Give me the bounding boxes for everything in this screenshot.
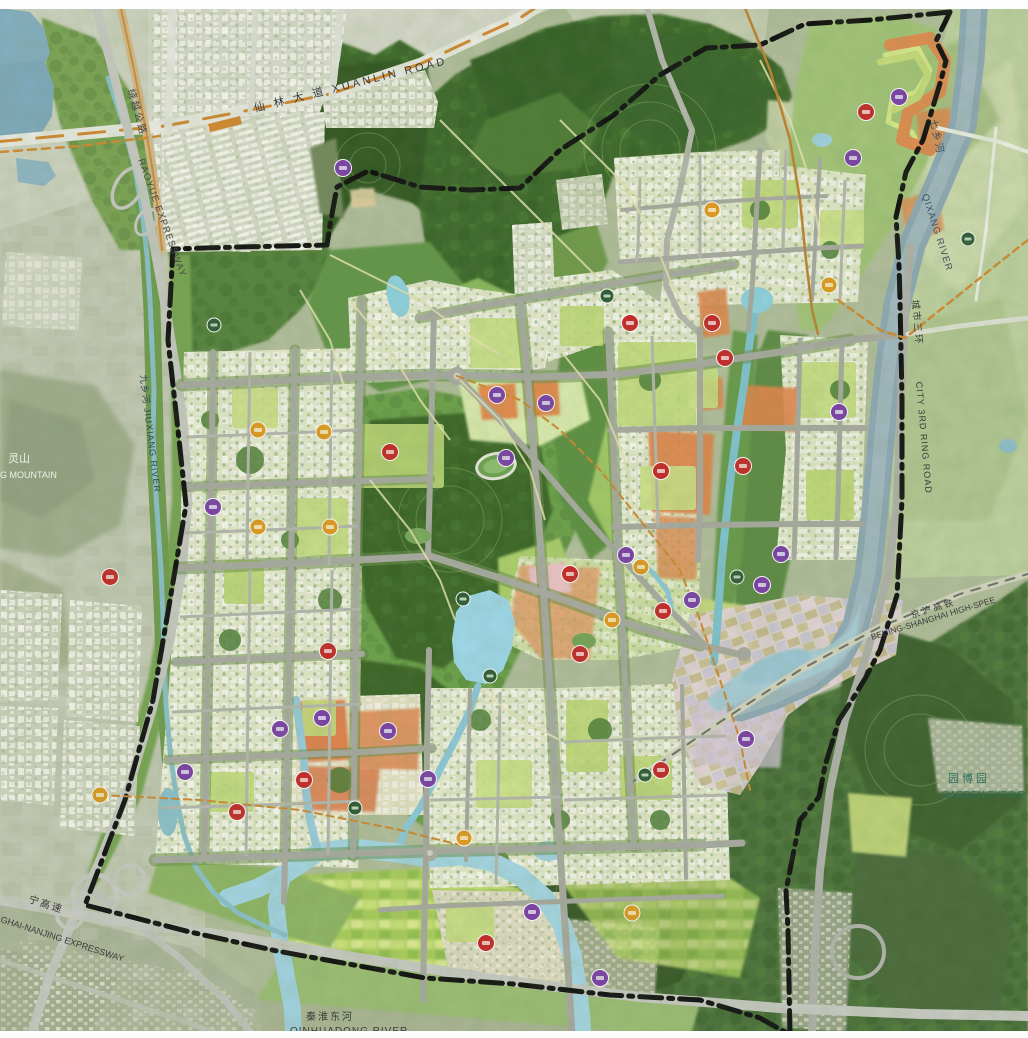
svg-text:秦淮东河: 秦淮东河 bbox=[306, 1010, 354, 1023]
svg-text:园博园: 园博园 bbox=[948, 772, 990, 785]
svg-text:GARDEN EXPO P: GARDEN EXPO P bbox=[942, 790, 1025, 801]
svg-text:G MOUNTAIN: G MOUNTAIN bbox=[0, 470, 57, 480]
svg-text:灵山: 灵山 bbox=[8, 452, 30, 465]
